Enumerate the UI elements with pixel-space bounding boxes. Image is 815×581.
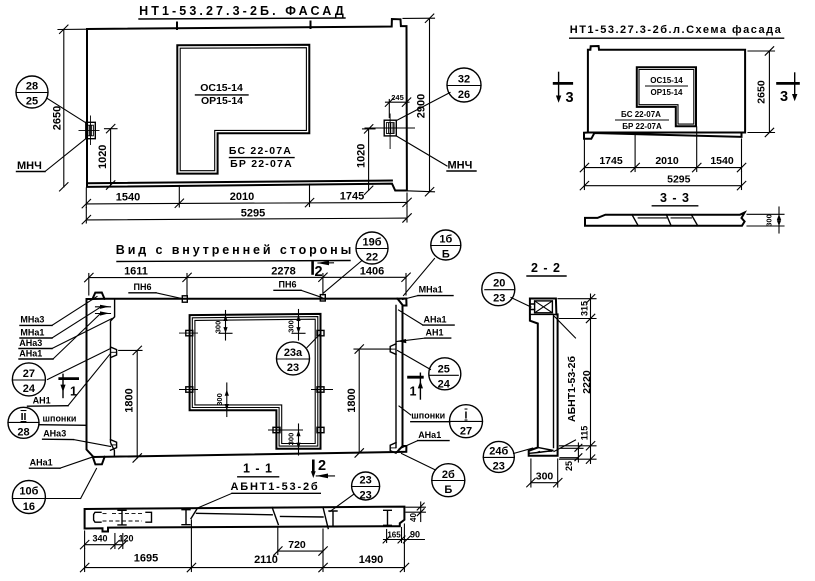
svg-text:2010: 2010 [230, 191, 254, 203]
svg-text:340: 340 [92, 534, 107, 544]
svg-text:1020: 1020 [356, 144, 368, 168]
svg-text:2650: 2650 [51, 106, 63, 130]
svg-text:720: 720 [288, 539, 306, 551]
svg-text:АН1: АН1 [426, 327, 444, 337]
svg-text:ОР15-14: ОР15-14 [650, 88, 683, 97]
svg-text:1800: 1800 [123, 388, 135, 412]
svg-text:2 - 2: 2 - 2 [531, 261, 561, 275]
svg-text:БР 22-07А: БР 22-07А [230, 158, 293, 170]
svg-text:20: 20 [493, 278, 505, 290]
svg-text:23: 23 [493, 460, 505, 472]
svg-text:28: 28 [17, 427, 29, 439]
svg-text:24: 24 [23, 383, 36, 395]
svg-text:1540: 1540 [710, 155, 734, 167]
svg-text:245: 245 [391, 93, 404, 102]
svg-text:1611: 1611 [124, 265, 148, 277]
svg-text:27: 27 [23, 368, 35, 380]
svg-text:1490: 1490 [359, 554, 383, 566]
svg-text:1540: 1540 [116, 192, 140, 204]
svg-text:2278: 2278 [271, 265, 295, 277]
svg-text:1: 1 [410, 385, 418, 399]
svg-text:19б: 19б [362, 237, 381, 249]
svg-text:5295: 5295 [667, 173, 691, 185]
svg-text:АНа1: АНа1 [418, 430, 441, 440]
svg-text:1: 1 [70, 385, 78, 399]
svg-text:АНа1: АНа1 [30, 458, 53, 468]
svg-text:22: 22 [366, 252, 378, 264]
svg-text:16: 16 [23, 501, 35, 513]
svg-text:300: 300 [536, 471, 554, 483]
svg-text:МНЧ: МНЧ [17, 160, 42, 172]
svg-text:40: 40 [409, 513, 418, 522]
svg-text:1406: 1406 [360, 265, 384, 277]
svg-text:10б: 10б [19, 486, 38, 498]
svg-text:1800: 1800 [346, 388, 358, 412]
svg-text:МНа3: МНа3 [20, 315, 44, 325]
svg-text:АНа3: АНа3 [19, 338, 42, 348]
svg-text:БР 22-07А: БР 22-07А [622, 122, 662, 131]
svg-text:АНа1: АНа1 [424, 314, 447, 324]
svg-text:2: 2 [315, 264, 323, 280]
svg-text:165: 165 [387, 530, 401, 539]
svg-text:АБНТ1-53-2б: АБНТ1-53-2б [231, 481, 320, 493]
svg-text:НТ1-53.27.3-2Б. ФАСАД: НТ1-53.27.3-2Б. ФАСАД [139, 4, 347, 18]
svg-text:90: 90 [410, 530, 420, 540]
svg-text:I: I [465, 410, 468, 422]
svg-text:АБНТ1-53-2б: АБНТ1-53-2б [566, 356, 578, 422]
svg-text:1 - 1: 1 - 1 [243, 462, 273, 476]
svg-text:32: 32 [458, 74, 470, 86]
svg-text:300: 300 [286, 320, 295, 333]
svg-text:БС 22-07А: БС 22-07А [621, 110, 661, 119]
svg-text:2б: 2б [442, 469, 455, 481]
svg-text:3: 3 [566, 90, 574, 106]
svg-text:2: 2 [318, 458, 326, 474]
svg-text:3: 3 [780, 89, 788, 105]
svg-text:24б: 24б [489, 445, 508, 457]
svg-text:2900: 2900 [416, 94, 428, 118]
svg-text:1745: 1745 [599, 155, 623, 167]
svg-text:315: 315 [579, 301, 589, 316]
svg-text:3 - 3: 3 - 3 [660, 191, 690, 205]
svg-text:25: 25 [26, 96, 38, 108]
svg-text:27: 27 [460, 426, 472, 438]
svg-text:1745: 1745 [340, 190, 364, 202]
svg-text:1б: 1б [439, 234, 452, 246]
svg-text:115: 115 [579, 426, 589, 441]
svg-text:28: 28 [26, 81, 38, 93]
svg-text:2110: 2110 [254, 554, 278, 566]
svg-text:300: 300 [286, 433, 295, 446]
svg-text:ПН6: ПН6 [134, 282, 152, 292]
svg-text:МНа1: МНа1 [20, 327, 44, 337]
svg-text:НТ1-53.27.3-2б.л.Схема фасада: НТ1-53.27.3-2б.л.Схема фасада [570, 24, 782, 36]
svg-text:шпонки: шпонки [43, 414, 77, 424]
svg-text:АНа1: АНа1 [19, 348, 42, 358]
svg-text:2010: 2010 [655, 155, 679, 167]
svg-text:300: 300 [213, 321, 222, 334]
svg-text:2220: 2220 [581, 370, 593, 394]
svg-text:23: 23 [359, 475, 371, 487]
svg-text:300: 300 [215, 393, 224, 406]
svg-text:1020: 1020 [97, 145, 109, 169]
svg-text:24: 24 [438, 378, 451, 390]
svg-text:Б: Б [442, 249, 450, 261]
svg-text:300: 300 [764, 214, 773, 227]
svg-text:ПН6: ПН6 [279, 280, 297, 290]
svg-text:II: II [21, 411, 27, 423]
svg-text:120: 120 [118, 534, 133, 544]
svg-text:23: 23 [493, 293, 505, 305]
svg-text:БС 22-07А: БС 22-07А [229, 145, 292, 157]
svg-text:1695: 1695 [134, 553, 158, 565]
svg-text:ОР15-14: ОР15-14 [201, 95, 243, 107]
svg-text:Вид с внутренней стороны: Вид с внутренней стороны [116, 243, 354, 257]
svg-text:ОС15-14: ОС15-14 [650, 76, 683, 85]
svg-text:23а: 23а [284, 347, 303, 359]
svg-text:25: 25 [564, 461, 574, 471]
svg-text:АН1: АН1 [33, 395, 51, 405]
svg-text:Б: Б [444, 484, 452, 496]
svg-text:МНЧ: МНЧ [448, 160, 473, 172]
svg-text:23: 23 [359, 490, 371, 502]
svg-text:26: 26 [458, 89, 470, 101]
svg-text:МНа1: МНа1 [419, 285, 443, 295]
svg-text:ОС15-14: ОС15-14 [200, 82, 243, 94]
svg-text:25: 25 [438, 363, 450, 375]
svg-text:2650: 2650 [755, 80, 767, 104]
svg-text:АНа3: АНа3 [43, 429, 66, 439]
svg-text:шпонки: шпонки [411, 411, 445, 421]
svg-text:5295: 5295 [241, 207, 265, 219]
svg-text:23: 23 [287, 362, 299, 374]
